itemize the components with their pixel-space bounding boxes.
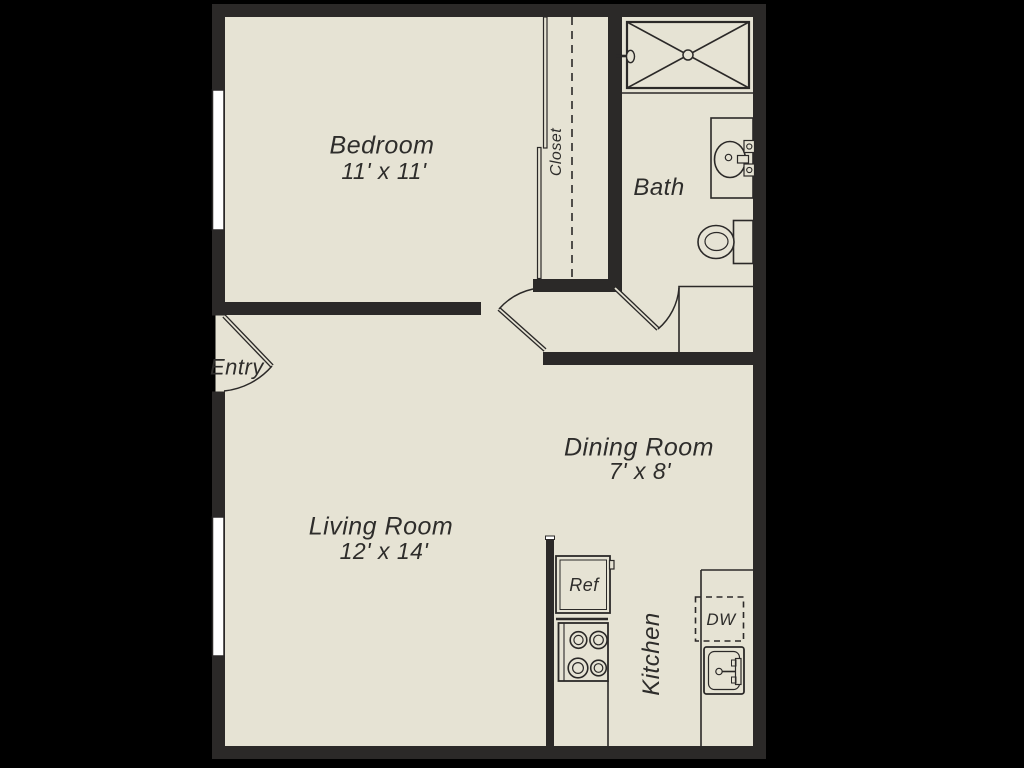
entry-opening xyxy=(212,316,226,392)
vanity-sink-icon xyxy=(711,118,755,198)
exterior-walls xyxy=(219,11,760,753)
bedroom-wall xyxy=(218,302,481,315)
kitchen-sink-icon xyxy=(704,647,744,694)
floor-plan: Bedroom 11' x 11' Living Room 12' x 14' … xyxy=(0,0,1024,768)
kitchen-wall-endcap xyxy=(546,536,555,540)
refrigerator-label: Ref xyxy=(569,575,600,595)
dishwasher-label: DW xyxy=(706,610,737,629)
hall-bath-wall xyxy=(543,352,754,365)
bedroom-label: Bedroom xyxy=(330,132,435,160)
living-room-label: Living Room xyxy=(309,513,453,541)
bath-label: Bath xyxy=(633,174,684,201)
kitchen-label: Kitchen xyxy=(638,612,665,696)
entry-label: Entry xyxy=(210,355,265,380)
kitchen-wall xyxy=(546,539,554,747)
closet-label: Closet xyxy=(548,128,565,176)
window-icon-living xyxy=(213,517,225,656)
closet-right-wall xyxy=(608,10,622,292)
living-room-dims: 12' x 14' xyxy=(340,538,430,564)
closet-bottom-wall xyxy=(533,279,622,292)
window-icon-bedroom xyxy=(213,90,225,230)
bedroom-dims: 11' x 11' xyxy=(341,158,427,184)
dining-room-dims: 7' x 8' xyxy=(609,458,672,484)
floor-plan-canvas: Bedroom 11' x 11' Living Room 12' x 14' … xyxy=(0,0,1024,768)
